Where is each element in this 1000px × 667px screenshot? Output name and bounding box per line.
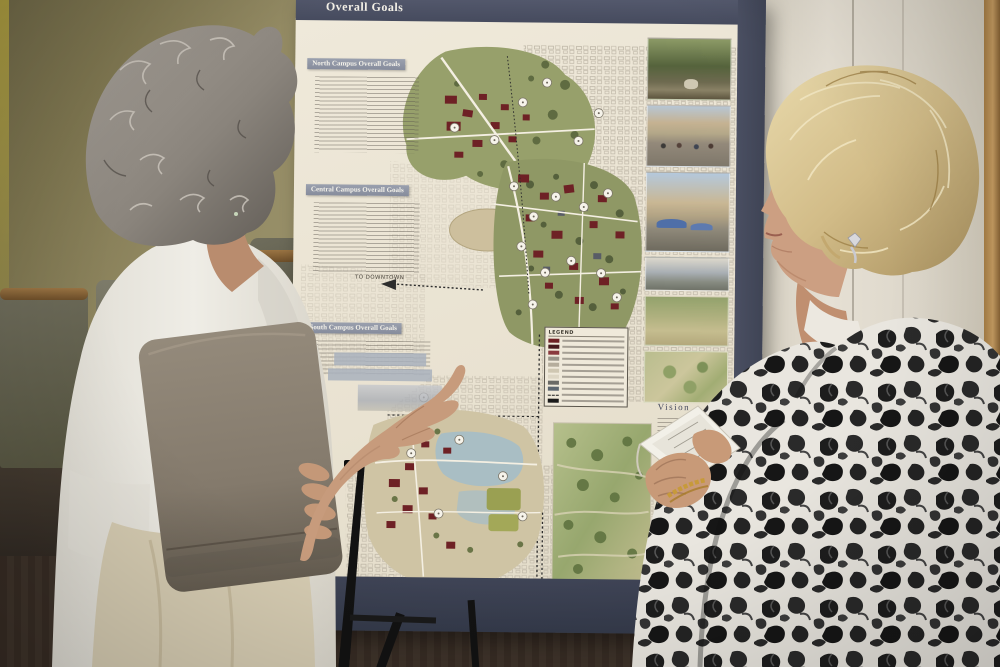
legend-swatch	[548, 375, 559, 379]
legend-label-line	[562, 352, 624, 355]
poster-bottom-band	[289, 576, 760, 635]
legend-swatch	[548, 399, 559, 403]
flipchart-easel-tray	[952, 392, 1000, 426]
to-downtown-label: TO DOWNTOWN	[355, 275, 404, 282]
legend-swatch	[548, 394, 559, 395]
flipchart-handwriting: LF COU	[943, 514, 985, 532]
legend-label-line	[562, 388, 624, 391]
legend-swatch	[548, 357, 559, 361]
chair-wood-rail	[0, 288, 88, 300]
wall-seam	[852, 0, 854, 430]
poster-photo-column	[644, 38, 732, 409]
poster-title: Overall Goals	[326, 0, 404, 15]
garden-rendering	[644, 296, 729, 347]
campus-master-plan-poster: North Campus Overall Goals Central Campu…	[289, 0, 766, 635]
flipchart-handwriting: NT	[946, 441, 974, 464]
office-chair	[96, 280, 148, 420]
central-campus-goals-header: Central Campus Overall Goals	[306, 184, 409, 196]
south-campus-goals-header: South Campus Overall Goals	[304, 322, 401, 334]
south-goals-callout	[328, 368, 432, 381]
wood-door-frame	[984, 0, 1000, 440]
south-goals-callout	[334, 352, 426, 366]
umbrella-plaza-photo	[645, 172, 730, 253]
office-chair	[0, 288, 88, 468]
vision-heading: Vision	[658, 402, 691, 412]
legend-label-line	[562, 382, 624, 385]
legend-swatch	[548, 345, 559, 349]
legend-row	[548, 398, 624, 405]
legend-label-line	[562, 400, 624, 403]
map-legend: LEGEND	[544, 327, 629, 408]
legend-label-line	[562, 358, 624, 361]
easel-clamp	[344, 460, 361, 472]
legend-label-line	[562, 394, 624, 397]
legend-label-line	[562, 376, 624, 379]
aerial-plaza-rendering	[644, 351, 729, 404]
legend-swatch	[548, 339, 559, 343]
street-section-sketch	[358, 385, 442, 412]
flipchart-handwriting: E TO M	[936, 496, 980, 516]
maroon-chair	[933, 604, 1000, 667]
flipchart-handwriting: an expan	[947, 559, 980, 571]
legend-title: LEGEND	[548, 330, 624, 338]
patio-photo	[645, 257, 729, 292]
wall-seam	[902, 0, 904, 430]
meeting-room-photo: NTE TO MLF COUE & UPDan expan	[0, 0, 1000, 667]
legend-swatch	[548, 351, 559, 355]
legend-swatch	[548, 387, 559, 391]
vision-paragraph	[657, 418, 723, 435]
legend-label-line	[562, 346, 624, 349]
legend-swatch	[548, 369, 559, 373]
legend-label-line	[562, 364, 624, 367]
campus-walkway-photo	[647, 38, 732, 101]
legend-label-line	[562, 370, 624, 373]
north-goals-list	[314, 76, 419, 153]
north-campus-goals-header: North Campus Overall Goals	[307, 58, 405, 70]
legend-swatch	[548, 363, 559, 367]
plaza-bikes-photo	[646, 105, 731, 168]
central-goals-list	[313, 202, 420, 275]
legend-label-line	[562, 340, 624, 343]
legend-swatch	[548, 381, 559, 385]
flipchart-handwriting: E & UPD	[936, 532, 983, 551]
